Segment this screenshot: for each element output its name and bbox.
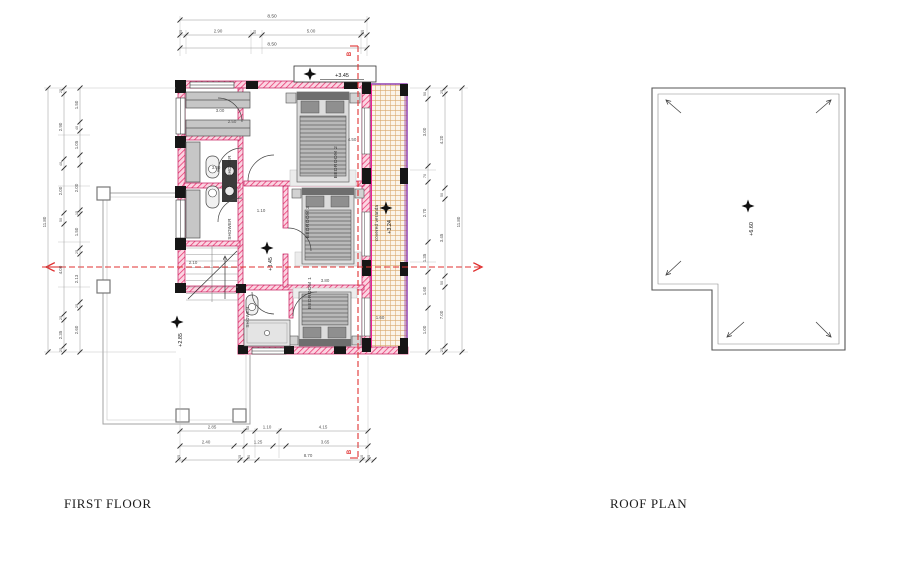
dim: 1.05 [74, 140, 79, 149]
roof-outline [652, 88, 845, 350]
dim-top-total2: 8.50 [267, 42, 277, 48]
dim: 3.00 [422, 127, 427, 136]
bathroom-fixtures [244, 295, 290, 346]
first-floor-title: FIRST FLOOR [64, 496, 152, 511]
level-marker-icon [171, 316, 184, 329]
dim: 2.00 [74, 183, 79, 192]
dim: 50 [246, 454, 251, 459]
dim-hall-w: 1.10 [257, 208, 266, 213]
drain-icon [264, 330, 269, 335]
first-floor-plan: BEDROOM 2 BEDROOM 3 BEDROOM 1 SHOWER SHO… [42, 14, 482, 463]
window [176, 200, 185, 238]
dim: 25 [360, 30, 365, 34]
label-shower-bottom: SHOWER [245, 306, 250, 327]
dim: 4.00 [58, 265, 63, 274]
dim-stair-w: 2.10 [189, 260, 198, 265]
level-hall: +3.45 [268, 257, 274, 271]
dim: 2.90 [214, 29, 223, 34]
dim: 25 [237, 455, 242, 459]
level-veranda: +3.24 [387, 220, 393, 234]
dim-chain-right: 50 3.00 70 2.70 1.35 1.60 1.00 25 4.20 5… [410, 86, 468, 355]
dim: 1.35 [422, 253, 427, 262]
dim-veranda-w: 1.60 [376, 315, 385, 320]
dim-closet-a: 3.00 [216, 108, 225, 113]
dim: 5.00 [307, 29, 316, 34]
section-label-b-top: B [347, 51, 353, 56]
dim: 2.60 [74, 325, 79, 334]
dim: 8.70 [304, 453, 313, 458]
dim: 2.13 [74, 274, 79, 283]
dim: 25 [58, 89, 63, 93]
dim: 3.45 [439, 233, 444, 242]
dim: 2.00 [58, 186, 63, 195]
roof-plan-title: ROOF PLAN [610, 496, 687, 511]
dim-chain-bottom: 2.85 50 1.10 4.15 2.40 1.25 3.65 25 25 5… [176, 356, 377, 463]
dim: 50 [422, 91, 427, 96]
level-top: +3.45 [335, 73, 349, 79]
dim: 25 [74, 250, 79, 254]
window [176, 98, 185, 134]
level-marker-icon [261, 242, 274, 255]
dim: 10 [359, 454, 364, 459]
section-label-b-bottom: B [347, 449, 353, 454]
dim: 2.40 [202, 440, 211, 445]
dim: 2.85 [208, 425, 217, 430]
dim-closet-b: 2.50 [228, 119, 237, 124]
dim: 15 [74, 211, 79, 215]
terrace-post [97, 280, 110, 293]
label-bedroom3: BEDROOM 3 [305, 206, 311, 239]
dim: 25 [74, 304, 79, 308]
dim: 50 [245, 425, 250, 430]
dim: 2.90 [58, 122, 63, 131]
terrace-post [233, 409, 246, 422]
dim: 3.65 [321, 440, 330, 445]
bed-bedroom1 [289, 288, 361, 346]
roof-level: +6.60 [749, 222, 755, 236]
dim: 25 [439, 90, 444, 94]
dim: 25 [58, 316, 63, 320]
dim-chain-top: 8.50 25 2.90 50 5.00 25 8.50 [178, 14, 370, 57]
dim: 1.50 [74, 100, 79, 109]
dim: 25 [58, 348, 63, 352]
dim-left-total: 11.80 [42, 216, 47, 227]
drawing-sheet: BEDROOM 2 BEDROOM 3 BEDROOM 1 SHOWER SHO… [0, 0, 900, 561]
dim: 7.00 [439, 310, 444, 319]
dim: 2.70 [422, 208, 427, 217]
dim: 25 [176, 455, 181, 459]
label-shower-mid: SHOWER [227, 218, 232, 239]
dim-top-total: 8.50 [267, 14, 277, 20]
window [252, 348, 286, 354]
label-shower-top: SHOWER [227, 155, 232, 176]
dim: 40 [58, 161, 63, 166]
dim: 1.25 [254, 440, 263, 445]
dim: 2.35 [58, 330, 63, 339]
dim: 4.20 [439, 135, 444, 144]
floorplan-canvas: BEDROOM 2 BEDROOM 3 BEDROOM 1 SHOWER SHO… [0, 0, 900, 561]
dim: 50 [252, 29, 257, 34]
roof-plan: +6.60 [652, 88, 845, 350]
dim: 40 [74, 125, 79, 130]
dim: 1.50 [74, 227, 79, 236]
sliding-door [362, 108, 370, 154]
dim: 50 [58, 217, 63, 222]
dim-bed2-h: 4.50 [348, 137, 357, 142]
label-veranda: covered veranda [374, 204, 379, 241]
dim: 25 [366, 455, 371, 459]
dim: 70 [422, 173, 427, 178]
sliding-door [362, 298, 370, 336]
level-terrace: +2.85 [178, 333, 184, 347]
dim: 50 [439, 192, 444, 197]
label-bedroom1: BEDROOM 1 [307, 277, 313, 310]
dim: 50 [439, 280, 444, 285]
dim: 1.10 [263, 425, 272, 430]
label-bedroom2: BEDROOM 2 [333, 146, 339, 179]
dim-bed1-w: 3.80 [321, 278, 330, 283]
dim-chain-left: 11.80 25 2.90 40 2.00 50 4.00 25 2.35 25… [42, 86, 176, 355]
dim: 4.15 [319, 425, 328, 430]
staircase [186, 246, 238, 302]
terrace-post [176, 409, 189, 422]
terrace-post [97, 187, 110, 200]
dim-right-total: 11.80 [456, 216, 461, 227]
dim-shower-w: 3.00 [212, 165, 221, 170]
section-lines: B B [42, 46, 482, 458]
dim: 1.00 [422, 325, 427, 334]
sliding-door [362, 212, 370, 256]
basin-icon [225, 186, 234, 195]
window [190, 82, 234, 88]
bed-bedroom3 [292, 188, 364, 266]
dim: 25 [178, 30, 183, 34]
dim: 1.60 [422, 286, 427, 295]
dim: 25 [439, 348, 444, 352]
